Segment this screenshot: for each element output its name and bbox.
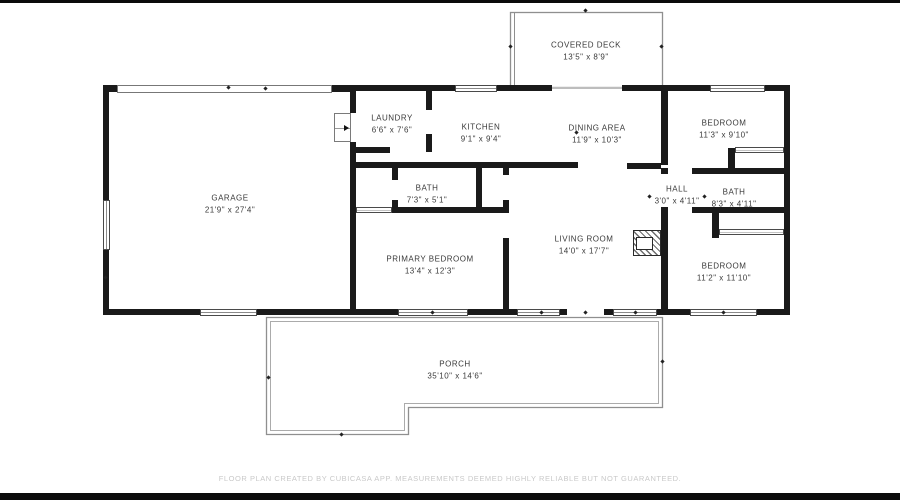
wall-segment [560,309,567,315]
room-name: COVERED DECK [551,39,621,51]
floor-plan: COVERED DECK 13'5" x 8'9" GARAGE 21'9" x… [0,0,900,500]
room-label-living-room: LIVING ROOM 14'0" x 17'7" [555,233,614,256]
wall-segment [661,168,668,174]
room-dims: 11'3" x 9'10" [699,129,749,141]
room-label-covered-deck: COVERED DECK 13'5" x 8'9" [551,39,621,62]
closet-sliding-door-icon [356,207,392,213]
room-label-bath-hall: BATH 8'3" x 4'11" [712,186,757,209]
wall-segment [503,238,509,309]
room-dims: 13'5" x 8'9" [563,51,608,63]
room-label-laundry: LAUNDRY 6'6" x 7'6" [371,112,413,135]
wall-segment [728,148,735,174]
wall-segment [627,163,661,169]
deck-and-porch-outlines [0,0,900,500]
garage-door-icon [117,85,332,93]
wall-segment [468,309,517,315]
wall-segment [103,85,117,92]
room-name: KITCHEN [462,121,501,133]
room-dims: 6'6" x 7'6" [372,124,412,136]
room-dims: 7'3" x 5'1" [407,194,447,206]
wall-segment [661,216,668,315]
wall-segment [604,309,613,315]
room-label-porch: PORCH 35'10" x 14'6" [427,358,482,381]
wall-segment [503,168,509,175]
fireplace-firebox [636,237,653,250]
garage-door-swing-icon [334,113,351,142]
room-label-bedroom-top-right: BEDROOM 11'3" x 9'10" [699,117,749,140]
wall-segment [392,168,398,180]
room-dims: 14'0" x 17'7" [559,245,609,257]
room-name: BATH [416,182,439,194]
wall-segment [661,91,668,165]
wall-segment [426,91,432,110]
wall-segment [692,168,790,174]
wall-segment [350,85,455,91]
closet-sliding-door-icon [735,147,784,153]
window-icon [200,309,257,316]
wall-segment [712,213,719,238]
room-label-bedroom-bottom-right: BEDROOM 11'2" x 11'10" [697,260,751,283]
room-name: DINING AREA [568,122,625,134]
wall-segment [103,250,109,315]
room-name: HALL [666,183,688,195]
fireplace-icon [633,230,661,256]
room-label-dining-area: DINING AREA 11'9" x 10'3" [568,122,625,145]
wall-segment [350,85,356,113]
room-dims: 11'9" x 10'3" [572,134,622,146]
window-icon [103,200,110,250]
room-label-bath-main: BATH 7'3" x 5'1" [407,182,447,205]
room-name: GARAGE [211,192,248,204]
wall-segment [257,309,350,315]
room-name: PORCH [439,358,470,370]
wall-segment [497,85,552,91]
room-label-primary-bedroom: PRIMARY BEDROOM 13'4" x 12'3" [386,253,473,276]
wall-segment [356,147,390,153]
room-name: LAUNDRY [371,112,413,124]
room-name: BATH [723,186,746,198]
wall-segment [784,85,790,315]
wall-segment [757,309,790,315]
room-dims: 9'1" x 9'4" [461,133,501,145]
disclaimer-text: FLOOR PLAN CREATED BY CUBICASA APP. MEAS… [219,474,682,483]
wall-segment [103,309,200,315]
wall-segment [350,309,398,315]
room-name: BEDROOM [702,260,747,272]
closet-sliding-door-icon [719,229,784,235]
room-name: PRIMARY BEDROOM [386,253,473,265]
wall-segment [350,162,578,168]
room-dims: 11'2" x 11'10" [697,272,751,284]
wall-segment [332,85,350,92]
room-dims: 21'9" x 27'4" [205,204,255,216]
room-name: BEDROOM [702,117,747,129]
room-dims: 13'4" x 12'3" [405,265,455,277]
wall-segment [503,200,509,213]
deck-sliding-door-opening [552,87,622,89]
wall-segment [426,134,432,152]
room-dims: 3'0" x 4'11" [655,195,700,207]
room-label-garage: GARAGE 21'9" x 27'4" [205,192,255,215]
room-dims: 35'10" x 14'6" [427,370,482,382]
window-icon [710,85,765,92]
wall-segment [103,85,109,200]
window-icon [455,85,497,92]
room-label-hall: HALL 3'0" x 4'11" [655,183,700,206]
room-label-kitchen: KITCHEN 9'1" x 9'4" [461,121,501,144]
wall-segment [661,207,668,216]
wall-segment [392,207,509,213]
room-name: LIVING ROOM [555,233,614,245]
room-dims: 8'3" x 4'11" [712,198,757,210]
